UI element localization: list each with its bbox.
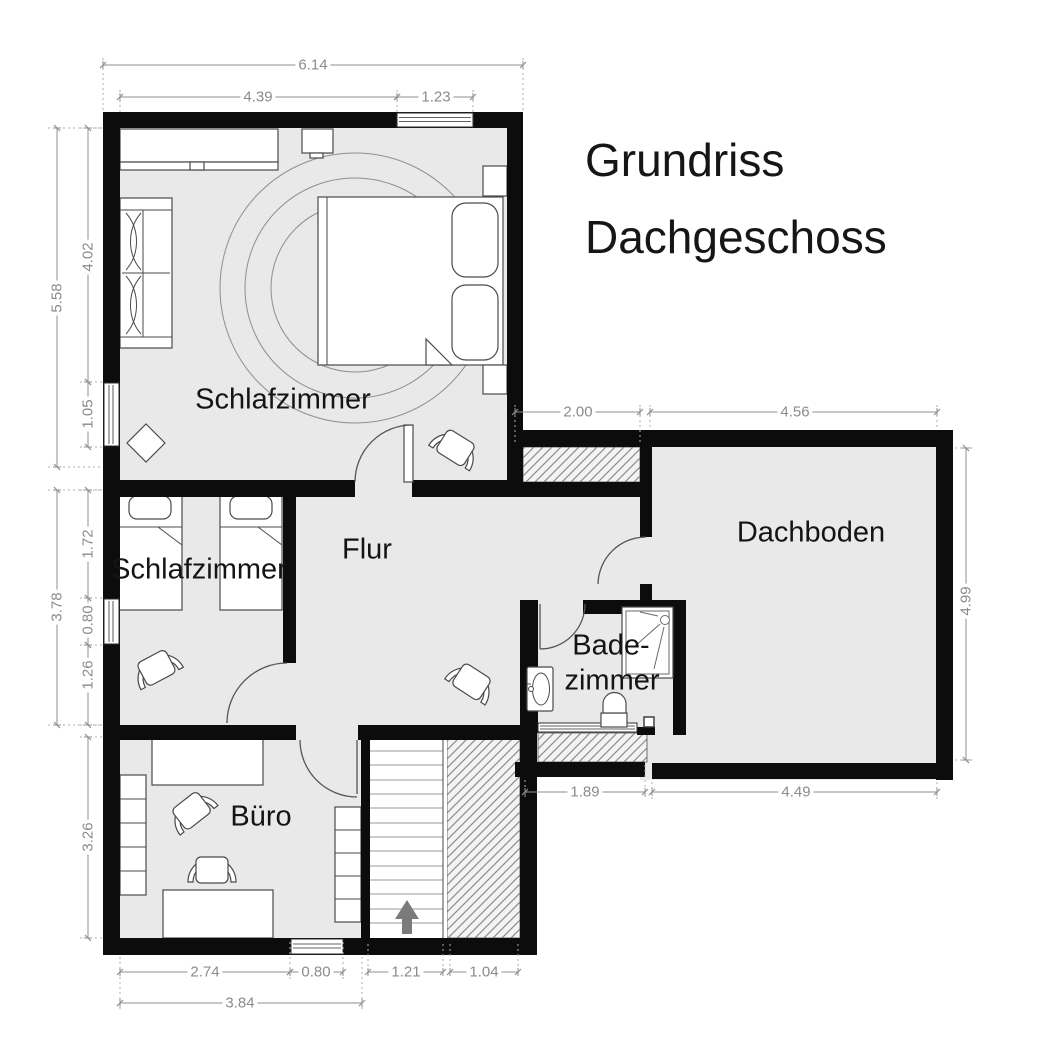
room-label-badezimmer-line1: Bade- xyxy=(572,630,649,663)
window-left-upper xyxy=(104,383,119,446)
plan-title: Grundriss Dachgeschoss xyxy=(585,122,887,276)
room-label-schlafzimmer-1: Schlafzimmer xyxy=(195,384,371,417)
sofa xyxy=(120,198,172,348)
window-left-middle xyxy=(104,599,119,644)
single-bed-left xyxy=(118,490,182,610)
floor-plan: Grundriss Dachgeschoss Schlafzimmer Schl… xyxy=(0,0,1058,1050)
dimension-dachboden-bottom: 4.49 xyxy=(778,784,813,801)
dimension-bottom-stairs: 1.21 xyxy=(388,964,423,981)
stairs-up xyxy=(370,737,447,938)
desk xyxy=(163,890,273,938)
dimension-left-mid-lower: 1.26 xyxy=(80,657,97,692)
room-label-badezimmer-line2: zimmer xyxy=(564,665,659,698)
room-label-buero: Büro xyxy=(230,801,291,834)
dimension-left-lower: 3.26 xyxy=(80,819,97,854)
plan-title-line1: Grundriss xyxy=(585,122,887,199)
bookshelf-left xyxy=(120,775,146,895)
window-bottom xyxy=(291,939,343,954)
dimension-bottom-window: 0.80 xyxy=(298,964,333,981)
hatched-strip-bottom xyxy=(538,733,647,762)
dimension-corridor-top: 2.00 xyxy=(560,404,595,421)
wardrobe xyxy=(120,129,278,170)
room-label-schlafzimmer-2: Schlafzimmer xyxy=(111,554,287,587)
single-bed-right xyxy=(220,490,282,610)
dimension-left-middle-total: 3.78 xyxy=(49,589,66,624)
room-label-flur: Flur xyxy=(342,534,392,567)
window-top xyxy=(397,113,473,127)
sink xyxy=(527,667,553,711)
nightstand-right-top xyxy=(483,166,507,196)
hatched-strip-top xyxy=(523,447,640,482)
dimension-bottom-total: 3.84 xyxy=(222,995,257,1012)
dimension-left-upper-window: 1.05 xyxy=(80,396,97,431)
dimension-dachboden-right: 4.99 xyxy=(958,583,975,618)
dimension-top-left: 4.39 xyxy=(240,89,275,106)
dimension-dachboden-top: 4.56 xyxy=(777,404,812,421)
room-label-dachboden: Dachboden xyxy=(737,517,885,550)
plan-title-line2: Dachgeschoss xyxy=(585,199,887,276)
double-bed xyxy=(318,197,503,365)
hatched-void-stairs xyxy=(447,733,520,938)
dimension-top-total: 6.14 xyxy=(295,57,330,74)
dimension-left-upper: 4.02 xyxy=(80,239,97,274)
dimension-left-mid-window: 0.80 xyxy=(80,602,97,637)
door-stop xyxy=(644,717,654,727)
nightstand-right-bottom xyxy=(483,365,507,394)
dimension-left-mid-upper: 1.72 xyxy=(80,526,97,561)
dimension-bottom-buero: 2.74 xyxy=(187,964,222,981)
bookshelf-right xyxy=(335,807,361,922)
dimension-top-window: 1.23 xyxy=(418,89,453,106)
dimension-bottom-void: 1.04 xyxy=(466,964,501,981)
dimension-left-upper-total: 5.58 xyxy=(49,280,66,315)
office-table xyxy=(152,733,263,785)
toilet xyxy=(601,693,627,728)
dimension-bottom-mid-left: 1.89 xyxy=(567,784,602,801)
floor-plan-drawing xyxy=(0,0,1058,1050)
